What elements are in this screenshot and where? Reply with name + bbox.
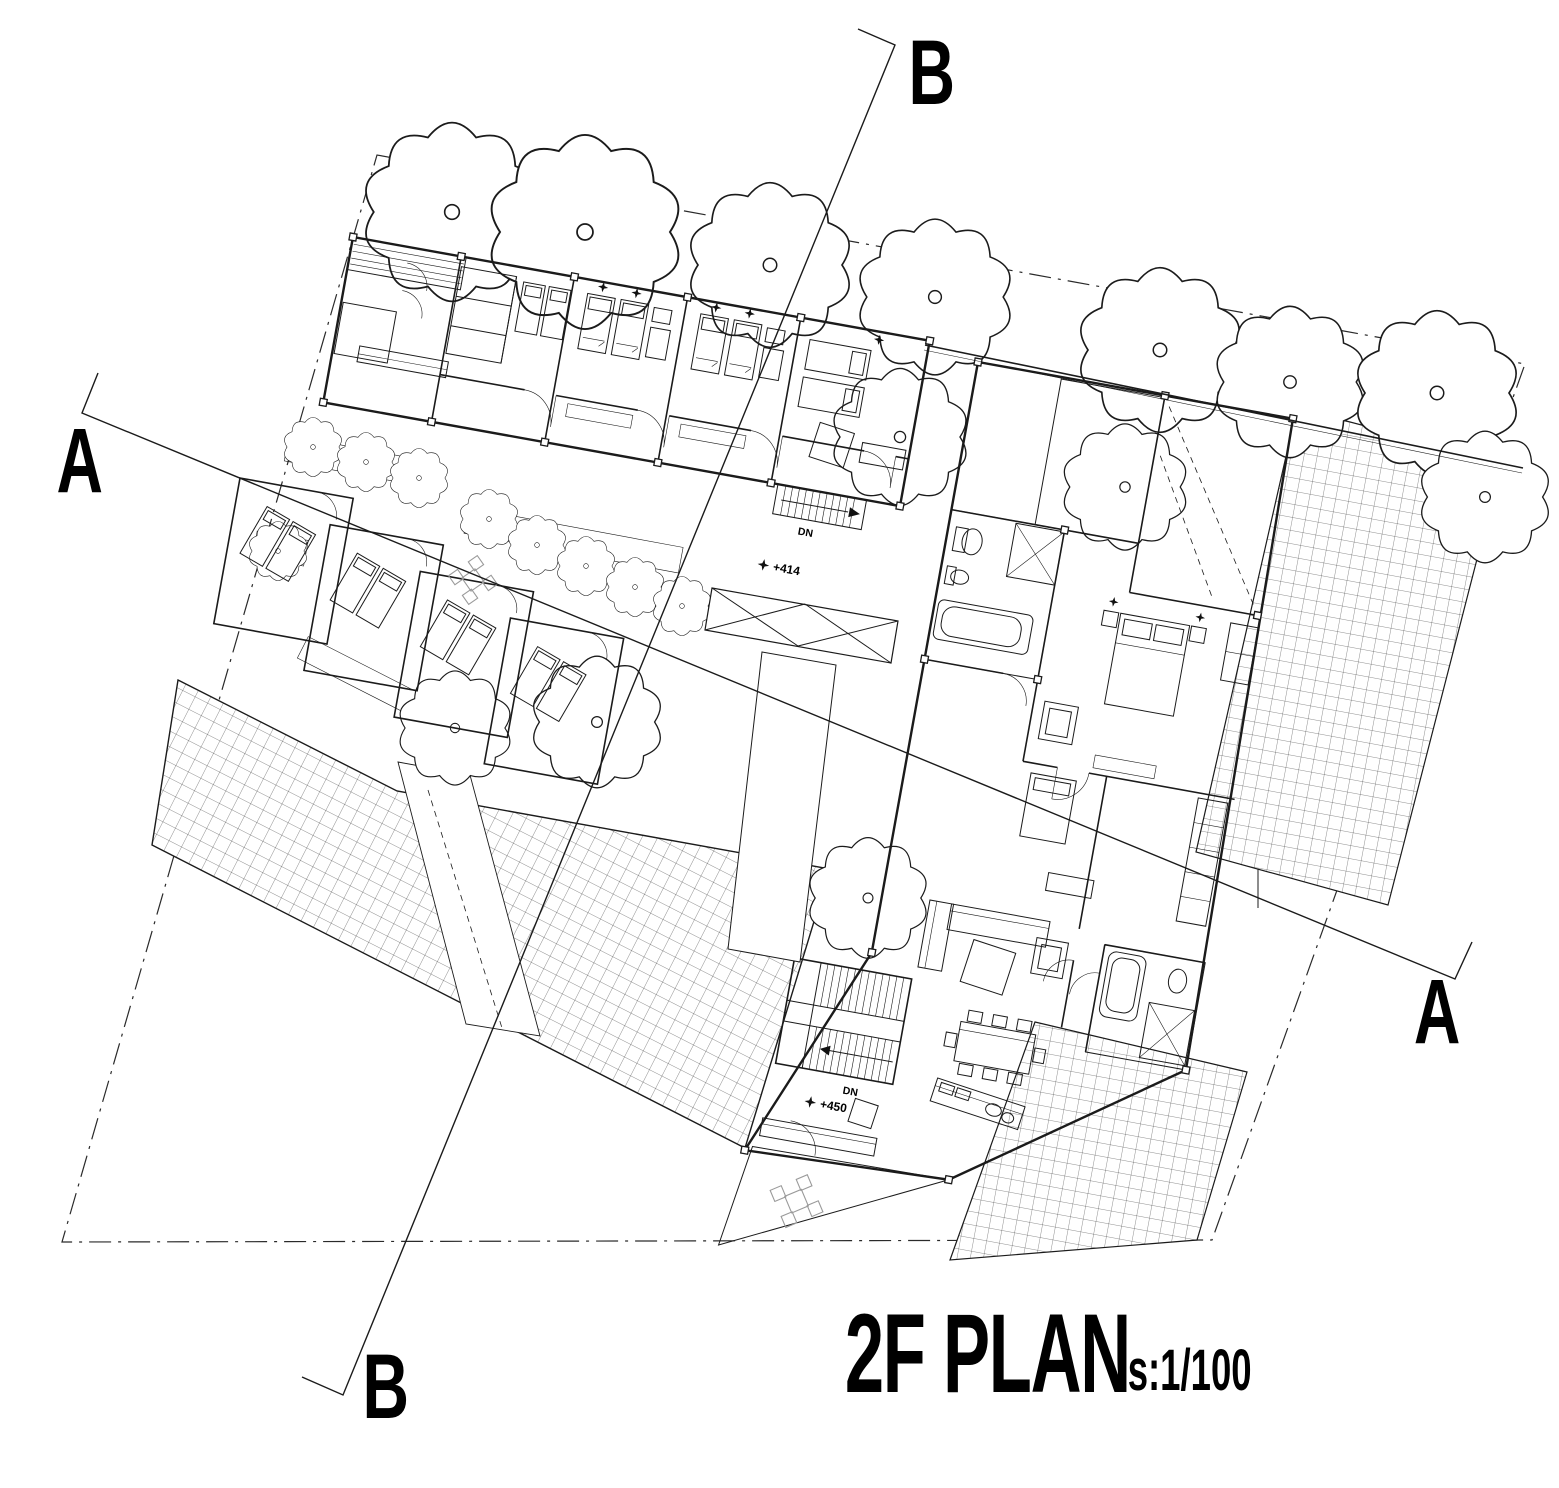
section-label-b-bottom: B bbox=[362, 1335, 409, 1438]
terrace-lower-right bbox=[950, 1022, 1247, 1260]
living-room bbox=[912, 749, 1107, 1027]
stair-upper: DN bbox=[769, 484, 866, 548]
stair-upper-label: DN bbox=[797, 526, 814, 540]
level-marker-lower: +450 bbox=[803, 1094, 848, 1115]
stair-lower-label: DN bbox=[842, 1085, 859, 1099]
floor-plan-sheet: DN +414 bbox=[0, 0, 1559, 1488]
plan-drawing: DN +414 bbox=[0, 0, 1559, 1488]
level-marker-upper: +414 bbox=[756, 557, 801, 578]
section-label-a-right: A bbox=[1414, 960, 1461, 1063]
bathroom-upper bbox=[920, 510, 1139, 721]
level-lower-text: +450 bbox=[819, 1097, 848, 1116]
stool bbox=[848, 1098, 878, 1128]
title-block: 2F PLAN s:1/100 bbox=[845, 1290, 1252, 1416]
plan-scale: s:1/100 bbox=[1128, 1339, 1252, 1404]
section-label-b-top: B bbox=[908, 21, 955, 124]
wing-room-2 bbox=[304, 525, 443, 691]
level-upper-text: +414 bbox=[772, 560, 801, 579]
courtyard-table bbox=[444, 551, 501, 608]
plan-title: 2F PLAN bbox=[845, 1290, 1130, 1416]
section-label-a-left: A bbox=[57, 409, 104, 512]
